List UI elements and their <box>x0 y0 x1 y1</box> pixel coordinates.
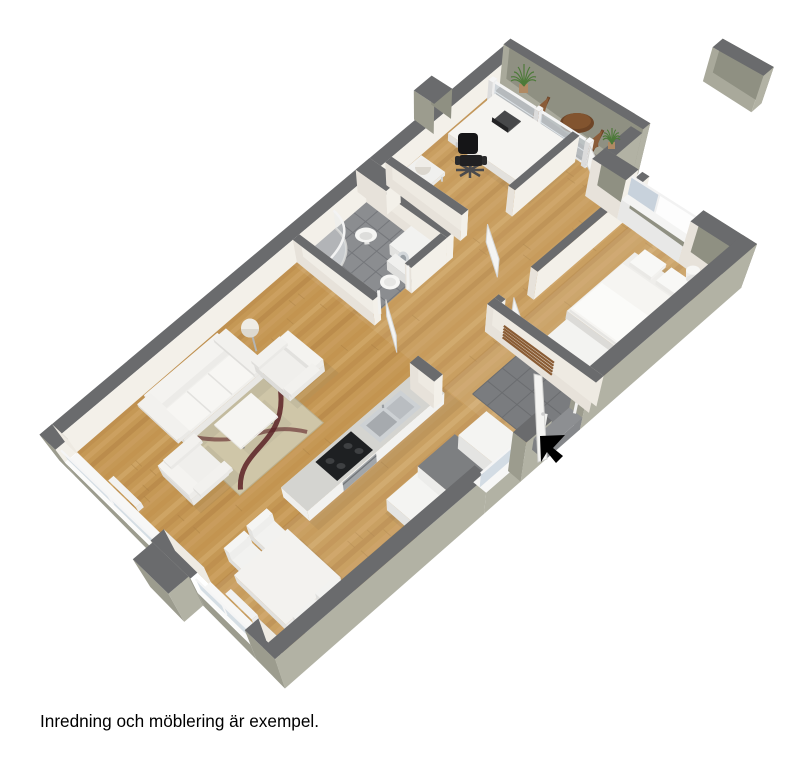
svg-text:Inredning och möblering är exe: Inredning och möblering är exempel. <box>40 711 319 731</box>
